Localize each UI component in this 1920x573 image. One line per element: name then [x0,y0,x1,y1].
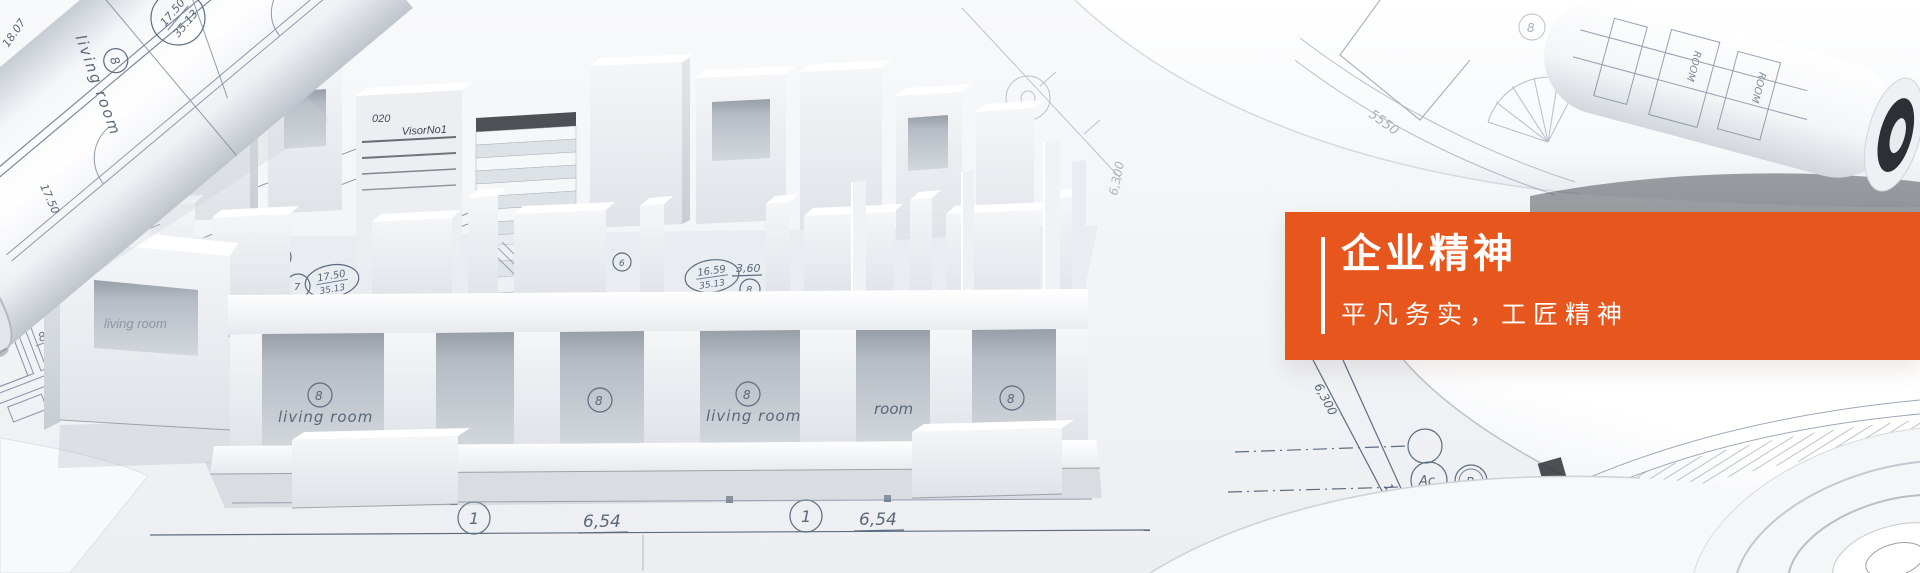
stamp-360: 3,60 [736,262,761,275]
banner-subtitle: 平凡务实，工匠精神 [1341,300,1629,330]
circle-8-faded: 8 [1527,21,1535,35]
axis-circle-1b: 1 [801,507,811,526]
slogan-panel: 企业精神 平凡务实，工匠精神 [1285,212,1920,360]
dim-654-b: 6,54 [859,510,897,530]
dim-654-a: 6,54 [583,512,621,532]
circle-8-o1: 8 [315,389,323,403]
living-room-left: living room [104,316,167,331]
banner-title: 企业精神 [1341,232,1517,276]
room-o5: room [874,400,913,418]
visor-label: VisorNo1 [402,124,448,138]
hero-banner: 1.25 chen 8.4 6 7 1 1 6,54 6,54 6,300 [0,0,1920,573]
circle-7-floor: 7 [294,282,301,293]
axis-circle-1: 1 [469,509,479,528]
circle-8-o4: 8 [743,388,751,402]
code-020-label: 020 [372,113,391,125]
circle-8-o3: 8 [595,394,603,408]
living-room-o1: living room [278,408,373,426]
circle-6-floor: 6 [619,259,625,269]
accent-divider-bar [1321,237,1325,334]
living-room-o4: living room [706,407,801,425]
circle-8-o6: 8 [1007,392,1015,406]
